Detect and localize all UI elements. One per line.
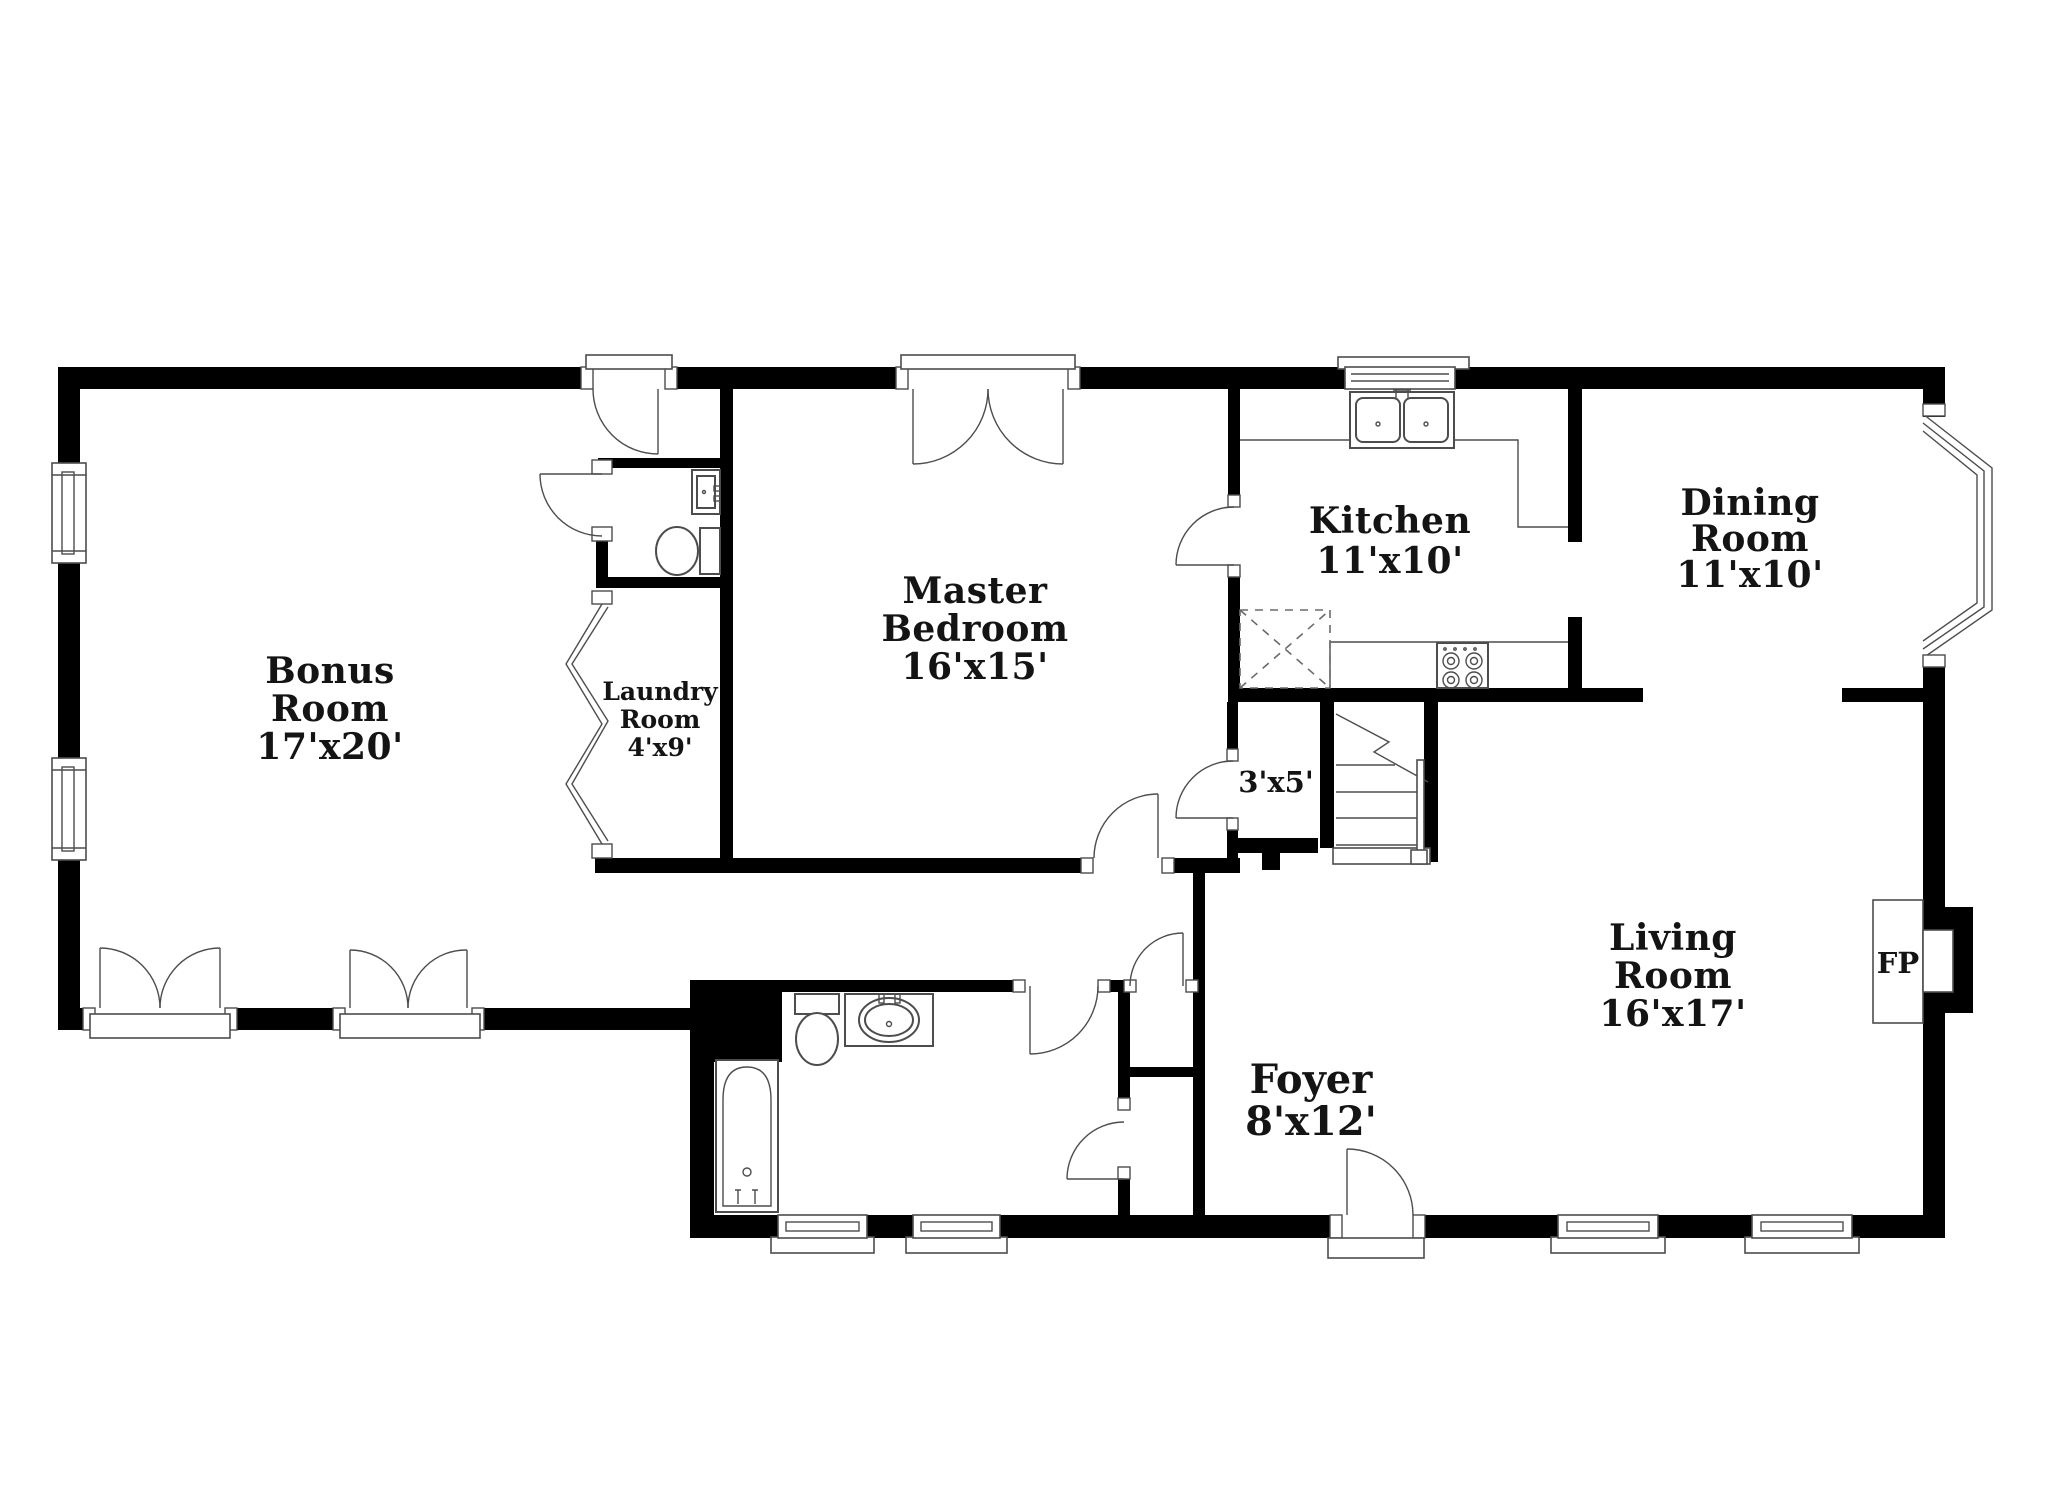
bathroom-vanity-sink: [845, 994, 933, 1046]
window-living-1: [1551, 1215, 1665, 1253]
pantry: [1240, 610, 1330, 688]
door-master-bedroom: [1094, 794, 1158, 858]
room-label-line: Kitchen: [1309, 500, 1471, 542]
window-bathroom-2: [906, 1215, 1007, 1253]
room-label-dining-room: Dining Room 11'x10': [1676, 482, 1823, 596]
room-label-line: Living: [1609, 917, 1737, 959]
floor-plan-drawing: Bonus Room 17'x20' Laundry Room 4'x9' Ma…: [0, 0, 2048, 1489]
room-label-line: FP: [1877, 946, 1920, 980]
room-label-line: 11'x10': [1316, 540, 1463, 582]
window-kitchen: [1338, 357, 1469, 389]
room-label-fireplace: FP: [1877, 946, 1920, 980]
room-label-line: 11'x10': [1676, 554, 1823, 596]
room-label-master-bedroom: Master Bedroom 16'x15': [881, 570, 1068, 688]
window-left-1: [52, 463, 86, 563]
room-label-line: Room: [1614, 955, 1732, 997]
room-label-laundry-room: Laundry Room 4'x9': [602, 677, 719, 762]
powder-sink: [692, 470, 720, 514]
room-label-line: 3'x5': [1238, 765, 1313, 799]
door-hall-closet: [1130, 933, 1183, 986]
room-label-line: Foyer: [1250, 1056, 1374, 1103]
bay-window: [1923, 404, 1992, 667]
french-doors-master: [901, 355, 1075, 464]
floor-plan-page: Bonus Room 17'x20' Laundry Room 4'x9' Ma…: [0, 0, 2048, 1489]
door-bathroom: [1030, 986, 1098, 1054]
room-label-line: Laundry: [602, 677, 719, 706]
room-label-line: Master: [903, 570, 1048, 612]
bifold-doors-laundry: [566, 604, 608, 844]
room-label-closet: 3'x5': [1238, 765, 1313, 799]
room-label-living-room: Living Room 16'x17': [1599, 917, 1746, 1035]
bathroom-toilet: [795, 994, 839, 1065]
room-label-line: Bedroom: [881, 608, 1068, 650]
kitchen-sink: [1350, 390, 1454, 448]
room-label-line: 16'x17': [1599, 993, 1746, 1035]
french-doors-bonus-1: [90, 948, 230, 1038]
window-left-2: [52, 758, 86, 860]
window-living-2: [1745, 1215, 1859, 1253]
bathtub: [716, 1060, 778, 1212]
stair-break-line: [1336, 714, 1428, 782]
room-label-line: Room: [620, 705, 701, 734]
room-label-line: 17'x20': [256, 726, 403, 768]
room-labels: Bonus Room 17'x20' Laundry Room 4'x9' Ma…: [256, 482, 1919, 1145]
wall-corner-mass: [690, 982, 782, 1062]
powder-toilet: [656, 527, 720, 575]
stair-newel: [1411, 850, 1427, 864]
room-label-kitchen: Kitchen 11'x10': [1309, 500, 1471, 582]
door-closet-3x5: [1176, 761, 1233, 818]
door-linen-closet: [1067, 1122, 1124, 1179]
door-bonus-exterior: [586, 355, 672, 454]
door-front-entry: [1328, 1149, 1424, 1258]
room-label-line: 8'x12': [1245, 1098, 1377, 1145]
fireplace-firebox: [1923, 930, 1953, 992]
room-label-line: 16'x15': [901, 646, 1048, 688]
room-label-line: Room: [271, 688, 389, 730]
staircase: [1333, 714, 1430, 864]
french-doors-bonus-2: [340, 950, 480, 1038]
room-label-bonus-room: Bonus Room 17'x20': [256, 650, 403, 768]
room-label-line: 4'x9': [627, 733, 692, 762]
room-label-foyer: Foyer 8'x12': [1245, 1056, 1377, 1145]
window-bathroom-1: [771, 1215, 874, 1253]
stair-handrail: [1417, 760, 1424, 860]
door-kitchen: [1176, 507, 1234, 565]
range-cooktop: [1437, 643, 1488, 688]
room-label-line: Bonus: [265, 650, 395, 692]
